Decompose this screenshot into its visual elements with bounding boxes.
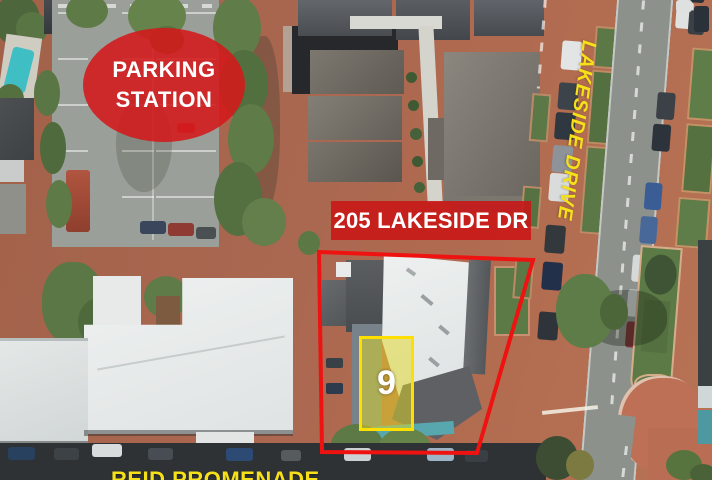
tree [566, 450, 594, 480]
parking-station-line2: STATION [116, 85, 213, 115]
stop-line [542, 405, 598, 415]
tree [690, 464, 712, 480]
lot-9-highlight: 9 [359, 336, 414, 431]
parking-station-badge: PARKING STATION [83, 28, 245, 142]
lot-9-number: 9 [377, 364, 396, 403]
tree [600, 294, 628, 330]
awning [698, 410, 712, 444]
parking-station-line1: PARKING [112, 55, 215, 85]
aerial-map: 9 PARKING STATION 205 LAKESIDE DR LAKESI… [0, 0, 712, 480]
reid-promenade-street-label: REID PROMENADE [111, 467, 320, 480]
awning [698, 386, 712, 408]
building-edge [698, 240, 712, 388]
car [676, 0, 692, 12]
address-label: 205 LAKESIDE DR [331, 201, 531, 240]
car [694, 6, 709, 32]
